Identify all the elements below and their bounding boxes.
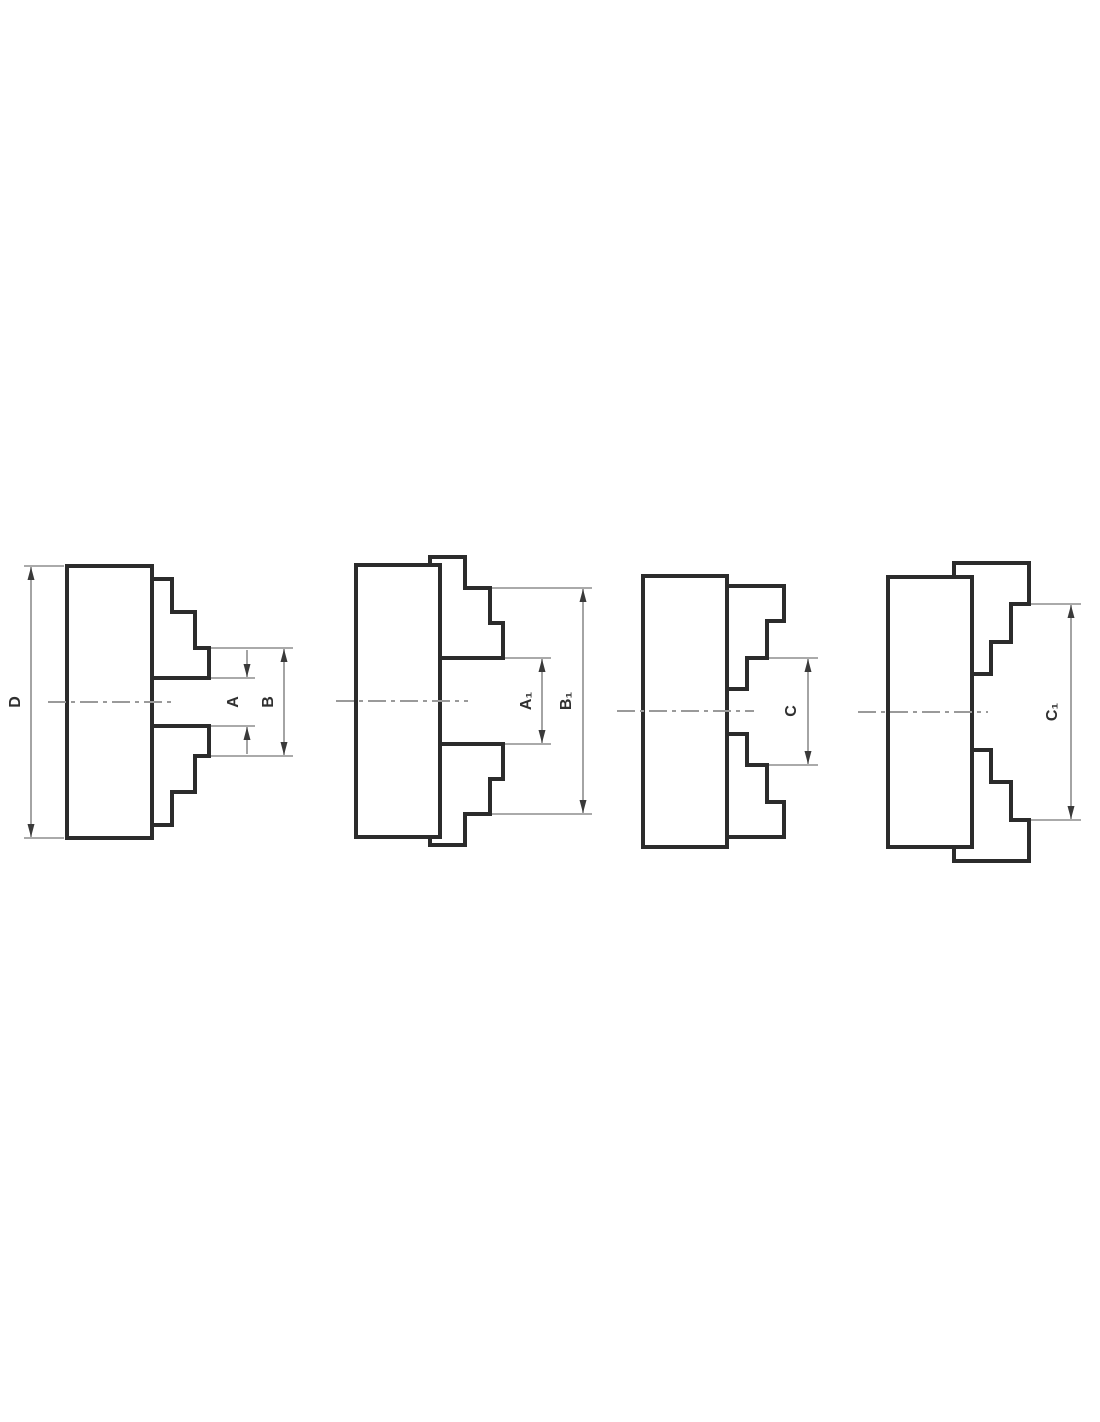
arrowhead-down: [1068, 806, 1075, 819]
top-jaw-outline: [152, 579, 209, 678]
dim-label-A: A: [225, 696, 242, 708]
arrowhead-up: [580, 589, 587, 602]
arrowhead-up: [805, 659, 812, 672]
arrowhead-up: [1068, 605, 1075, 618]
arrowhead-down: [28, 824, 35, 837]
arrowhead-up: [244, 727, 251, 740]
dim-label-A1: A₁: [518, 692, 535, 711]
dim-label-C: C: [783, 705, 800, 717]
bottom-jaw-outline: [727, 734, 784, 837]
top-jaw-outline: [954, 563, 1029, 674]
dim-label-B1: B₁: [558, 692, 575, 711]
top-jaw-outline: [727, 586, 784, 689]
chuck-body-outline: [67, 566, 152, 838]
dim-label-D: D: [7, 696, 24, 708]
technical-drawing-page: D A B: [0, 0, 1100, 1422]
arrowhead-down: [580, 800, 587, 813]
dim-label-C1: C₁: [1044, 703, 1061, 722]
arrowhead-up: [539, 659, 546, 672]
bottom-jaw-outline: [152, 726, 209, 825]
arrowhead-up: [281, 649, 288, 662]
dim-label-B: B: [260, 696, 277, 708]
arrowhead-up: [28, 567, 35, 580]
figure-jaws-normal-opened: A₁ B₁: [336, 557, 592, 845]
figure-jaws-reversed-closed: C: [617, 576, 818, 847]
figure-jaws-normal-closed: D A B: [7, 566, 293, 838]
chuck-jaw-diagrams-svg: D A B: [0, 0, 1100, 1422]
bottom-jaw-outline: [954, 750, 1029, 861]
arrowhead-down: [805, 751, 812, 764]
arrowhead-down: [281, 742, 288, 755]
arrowhead-down: [539, 730, 546, 743]
arrowhead-down: [244, 664, 251, 677]
figure-jaws-reversed-opened: C₁: [858, 563, 1081, 861]
